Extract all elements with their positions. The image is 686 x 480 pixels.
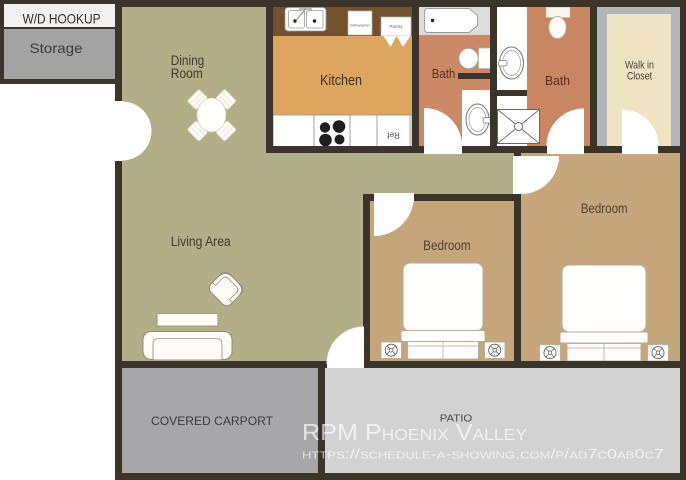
svg-text:Storage: Storage [30,40,83,56]
svg-text:W/D HOOKUP: W/D HOOKUP [23,11,101,27]
svg-text:RPM Phoenix Valley: RPM Phoenix Valley [302,419,527,445]
svg-text:Bath: Bath [545,73,570,88]
svg-text:Dishwasher: Dishwasher [350,23,371,28]
svg-text:Ref: Ref [387,131,400,140]
svg-text:COVERED CARPORT: COVERED CARPORT [151,416,273,428]
svg-text:Kitchen: Kitchen [320,73,362,89]
svg-text:Bedroom: Bedroom [423,238,471,253]
svg-text:https://schedule-a-showing.com: https://schedule-a-showing.com/p/ad7c0ab… [302,446,664,462]
svg-text:Living Area: Living Area [171,234,231,249]
svg-text:Pantry: Pantry [390,24,404,29]
svg-text:Bedroom: Bedroom [581,201,628,216]
svg-text:Bath: Bath [432,66,456,81]
svg-text:Closet: Closet [627,70,652,82]
svg-text:Room: Room [171,66,203,81]
